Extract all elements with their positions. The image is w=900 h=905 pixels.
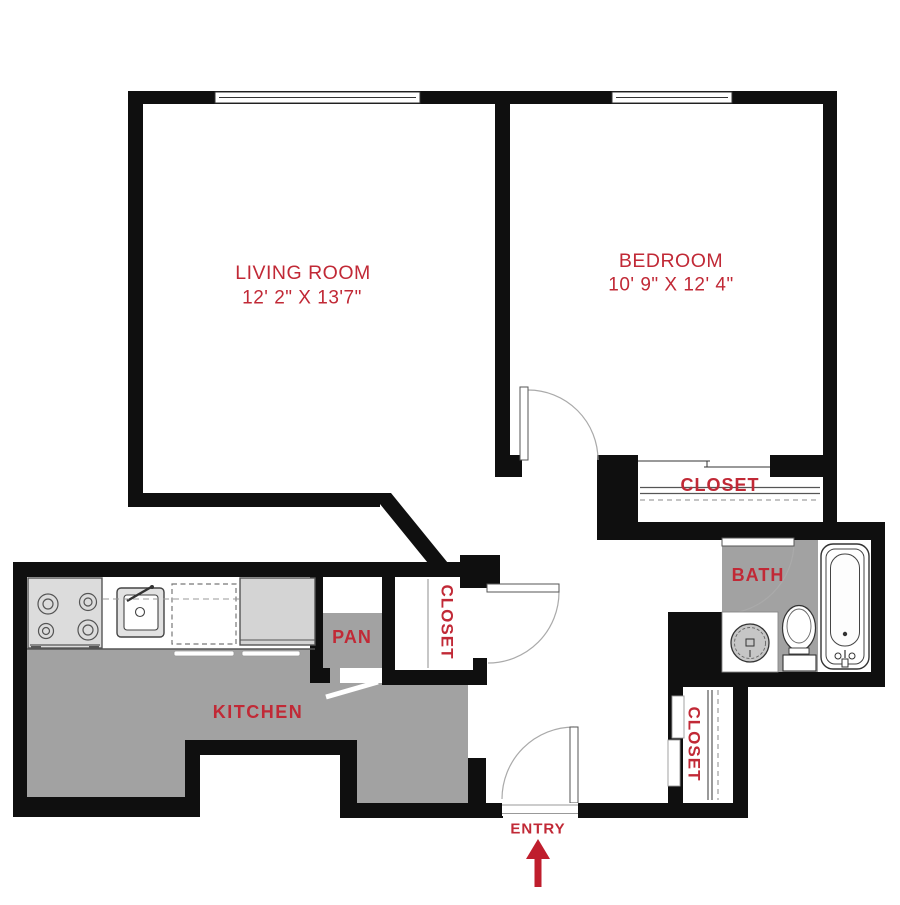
bedroom-closet-label: CLOSET xyxy=(680,475,759,495)
cabinet-kick-1 xyxy=(174,651,234,656)
floor-plan-canvas: LIVING ROOM 12' 2" X 13'7" BEDROOM 10' 9… xyxy=(0,0,900,900)
entry-label: ENTRY xyxy=(510,821,565,838)
living-room-label: LIVING ROOM xyxy=(235,262,371,284)
dishwasher-dashed xyxy=(172,584,236,644)
living-room-window xyxy=(215,92,420,103)
bedroom-label: BEDROOM xyxy=(619,250,723,272)
kitchen-label: KITCHEN xyxy=(213,702,304,722)
hall-closet-label: CLOSET xyxy=(438,585,457,660)
entry-closet-label: CLOSET xyxy=(685,707,704,782)
stove xyxy=(28,578,102,650)
living-room-dimensions: 12' 2" X 13'7" xyxy=(242,288,362,309)
pantry-label: PAN xyxy=(332,627,372,647)
toilet xyxy=(783,606,817,672)
bedroom-dimensions: 10' 9" X 12' 4" xyxy=(608,275,733,296)
refrigerator xyxy=(240,578,315,645)
bath-sink xyxy=(722,612,778,672)
bath-label: BATH xyxy=(732,565,785,585)
floor-plan-page: LIVING ROOM 12' 2" X 13'7" BEDROOM 10' 9… xyxy=(0,0,900,900)
kitchen-sink xyxy=(117,585,164,637)
bedroom-window xyxy=(612,92,732,103)
bathtub xyxy=(821,544,869,669)
cabinet-kick-2 xyxy=(242,651,300,656)
